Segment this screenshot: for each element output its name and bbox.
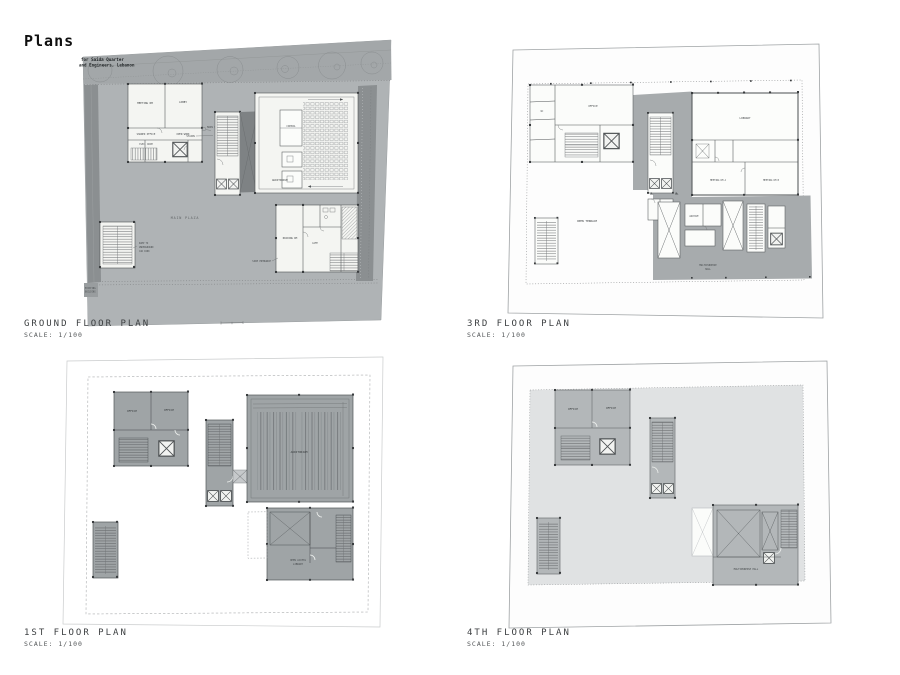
- svg-text:AUDITORIUM: AUDITORIUM: [291, 450, 308, 454]
- svg-text:CONTROL: CONTROL: [286, 125, 296, 128]
- svg-text:ELEC. ROOM: ELEC. ROOM: [139, 143, 153, 146]
- svg-text:OFFICE: OFFICE: [606, 406, 616, 410]
- svg-text:LIBRARY: LIBRARY: [740, 116, 751, 120]
- svg-text:MULTIPURPOSE: MULTIPURPOSE: [699, 264, 717, 267]
- first-plan-scale: SCALE: 1/100: [24, 640, 128, 648]
- svg-text:OPEN ACCESS: OPEN ACCESS: [290, 559, 306, 562]
- svg-text:OFFICE: OFFICE: [164, 408, 174, 412]
- third-plan-title: 3RD FLOOR PLAN: [467, 319, 571, 329]
- svg-text:MEETING RM: MEETING RM: [137, 101, 153, 105]
- fourth-plan-caption: 4TH FLOOR PLAN SCALE: 1/100: [467, 628, 571, 648]
- third-plan-caption: 3RD FLOOR PLAN SCALE: 1/100: [467, 319, 571, 339]
- ground-plan-scale: SCALE: 1/100: [24, 331, 150, 339]
- svg-text:MULTIPURPOSE HALL: MULTIPURPOSE HALL: [734, 568, 759, 571]
- plaza-label: MAIN PLAZA: [171, 216, 199, 220]
- svg-text:OFFICE: OFFICE: [588, 104, 598, 108]
- third-plan-scale: SCALE: 1/100: [467, 331, 571, 339]
- svg-text:RAMP TO: RAMP TO: [139, 242, 149, 245]
- svg-text:ARCHIVE: ARCHIVE: [689, 215, 699, 218]
- office-block: WC OFFICE: [529, 84, 634, 164]
- third-floor-plan-drawing: WC OFFICE LIBRARY MEETING RM A MEETING R…: [465, 40, 835, 335]
- svg-text:BUILDING: BUILDING: [85, 291, 96, 294]
- plaza-stair-block: [92, 521, 118, 578]
- svg-text:for Saida Quarter: for Saida Quarter: [81, 57, 124, 62]
- svg-text:OFFICE: OFFICE: [127, 409, 137, 413]
- ground-plan-title: GROUND FLOOR PLAN: [24, 319, 150, 329]
- first-plan-title: 1ST FLOOR PLAN: [24, 628, 128, 638]
- ground-floor-plan-drawing: for Saida Quarter and Engineers, Lebanon…: [75, 36, 395, 336]
- svg-text:LIBRARY: LIBRARY: [293, 563, 304, 566]
- stair-core: [649, 417, 676, 499]
- svg-text:CAFE: CAFE: [312, 242, 318, 245]
- svg-text:CAR PARK: CAR PARK: [139, 250, 150, 253]
- svg-text:READING RM: READING RM: [283, 237, 298, 240]
- sheet-title: Plans: [24, 32, 74, 50]
- svg-text:SHARED OFFICE: SHARED OFFICE: [137, 133, 156, 136]
- existing-building-left-band: EXISTING BUILDING: [84, 85, 101, 298]
- fourth-plan-scale: SCALE: 1/100: [467, 640, 571, 648]
- ground-plan-caption: GROUND FLOOR PLAN SCALE: 1/100: [24, 319, 150, 339]
- svg-text:OFFICE: OFFICE: [568, 407, 578, 411]
- svg-text:LOBBY: LOBBY: [179, 100, 187, 104]
- svg-text:and Engineers, Lebanon: and Engineers, Lebanon: [79, 63, 135, 68]
- plans-sheet: Plans for Saida Quarter and Engineers, L…: [0, 0, 900, 675]
- auditorium-block: CONTROL AUDITORIUM: [254, 92, 359, 194]
- plaza-stair-block: [536, 517, 561, 574]
- svg-text:MEETING RM A: MEETING RM A: [710, 179, 726, 182]
- office-block: OFFICE OFFICE: [113, 391, 189, 468]
- svg-text:OPEN TERRACE: OPEN TERRACE: [577, 219, 598, 223]
- svg-text:AUDITORIUM: AUDITORIUM: [272, 178, 288, 182]
- first-floor-plan-drawing: OFFICE OFFICE: [55, 348, 395, 638]
- svg-text:UNDERGROUND: UNDERGROUND: [139, 246, 154, 249]
- svg-text:STAIRS: STAIRS: [186, 135, 195, 138]
- fourth-floor-plan-drawing: OFFICE OFFICE: [465, 352, 835, 637]
- svg-text:MEETING RM B: MEETING RM B: [763, 179, 779, 182]
- library-block: LIBRARY MEETING RM A MEETING RM B: [691, 91, 799, 196]
- auditorium-block: AUDITORIUM: [246, 394, 354, 504]
- svg-text:HALL: HALL: [705, 268, 711, 271]
- office-block: OFFICE OFFICE: [554, 389, 631, 467]
- svg-text:SIDE ENTRANCE: SIDE ENTRANCE: [252, 260, 271, 263]
- first-plan-caption: 1ST FLOOR PLAN SCALE: 1/100: [24, 628, 128, 648]
- fourth-plan-title: 4TH FLOOR PLAN: [467, 628, 571, 638]
